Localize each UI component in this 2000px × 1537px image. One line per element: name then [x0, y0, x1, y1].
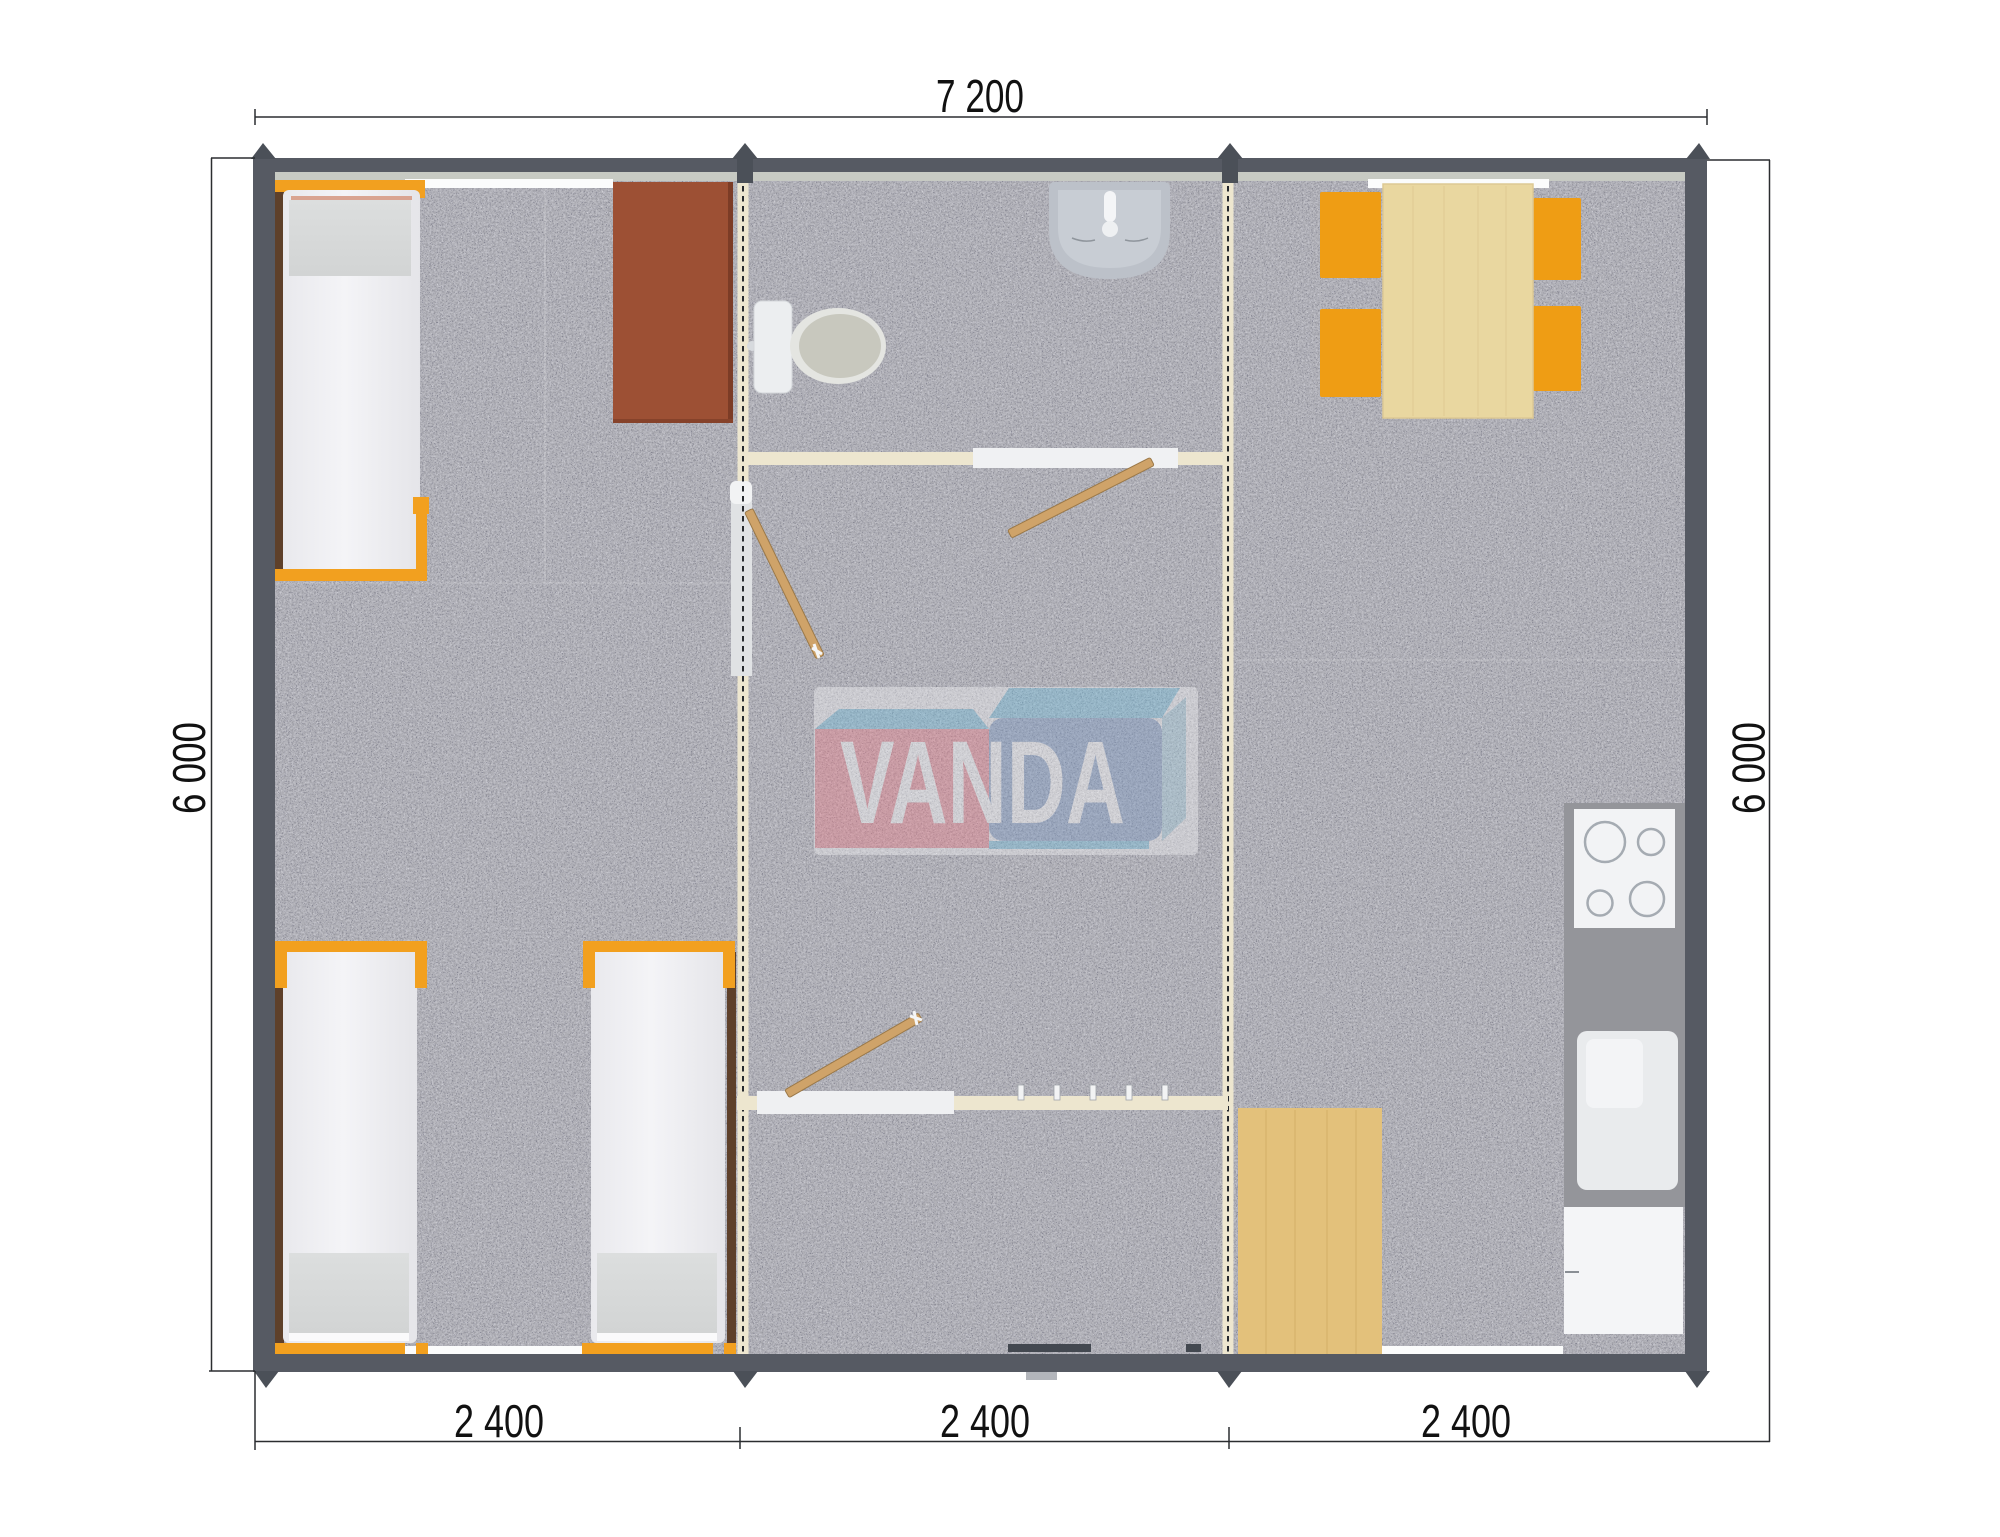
svg-text:2 400: 2 400 — [454, 1395, 544, 1447]
svg-text:7 200: 7 200 — [936, 70, 1024, 122]
svg-text:VANDA: VANDA — [840, 717, 1125, 849]
svg-text:6 000: 6 000 — [163, 722, 215, 814]
svg-text:2 400: 2 400 — [1421, 1395, 1511, 1447]
svg-text:2 400: 2 400 — [940, 1395, 1030, 1447]
svg-text:6 000: 6 000 — [1723, 722, 1775, 814]
